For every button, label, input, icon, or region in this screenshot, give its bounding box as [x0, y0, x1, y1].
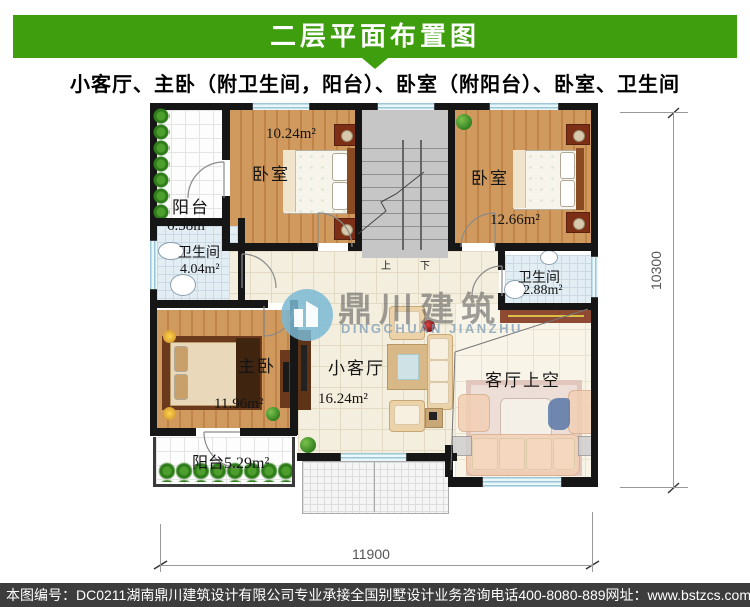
- watermark-en: DINGCHUAN JIANZHU: [341, 321, 523, 336]
- window: [377, 103, 435, 110]
- lamp-icon: [163, 330, 176, 343]
- tv-icon: [283, 362, 289, 392]
- window: [340, 453, 407, 461]
- wall: [560, 477, 598, 487]
- void-sofa-cushion: [553, 438, 575, 470]
- window: [482, 477, 562, 487]
- phone-number: 咨询电话400-8080-889: [462, 585, 605, 605]
- bedroom-left-area: 10.24m²: [266, 126, 316, 143]
- dim-height-label: 10300: [648, 251, 664, 290]
- website: 网址：www.bstzcs.com: [606, 585, 750, 605]
- wall: [448, 477, 482, 487]
- dim-ext-line: [160, 524, 161, 572]
- dim-line-bottom: [160, 565, 592, 566]
- company-name: 湖南鼎川建筑设计有限公司专业承接全国别墅设计业务: [126, 585, 462, 605]
- pillow: [174, 346, 188, 372]
- bedroom-right-area: 12.66m²: [490, 212, 540, 229]
- balcony-parapet: [292, 437, 295, 487]
- stairs-down-label: 下: [420, 257, 430, 272]
- armchair-cushion: [394, 405, 420, 425]
- window: [150, 240, 157, 290]
- porch-floor: [302, 461, 449, 514]
- wall: [150, 428, 196, 436]
- pillow: [560, 180, 575, 207]
- void-name: 客厅上空: [485, 366, 561, 391]
- wall: [150, 300, 268, 308]
- dim-line-right: [673, 113, 674, 488]
- wall: [495, 243, 598, 251]
- pillow: [560, 152, 575, 179]
- stair-rail: [420, 140, 422, 250]
- lamp-icon: [163, 407, 176, 420]
- bed-right-blanket: [513, 150, 526, 208]
- wall: [448, 110, 455, 251]
- balcony-parapet: [153, 484, 295, 487]
- wall: [290, 300, 298, 435]
- wall: [222, 110, 230, 160]
- sofa-cushion: [429, 338, 449, 360]
- balcony-top-name: 阳台: [172, 193, 210, 218]
- page-title: 二层平面布置图: [13, 15, 737, 58]
- drawing-number: 本图编号：DC0211: [6, 585, 126, 605]
- wall: [297, 453, 340, 461]
- void-armchair: [458, 394, 490, 432]
- dim-ext-line: [592, 512, 593, 572]
- tv-icon: [301, 345, 307, 391]
- balcony-parapet: [153, 437, 156, 487]
- dim-ext-line: [620, 487, 688, 488]
- window: [591, 256, 598, 298]
- wall: [240, 428, 297, 436]
- sofa-cushion: [429, 382, 449, 404]
- sink-icon: [540, 250, 558, 265]
- void-sofa-cushion: [499, 438, 525, 470]
- dim-width-label: 11900: [352, 546, 390, 562]
- bed-left-headboard: [347, 148, 355, 214]
- pillow: [174, 374, 188, 400]
- living-area: 16.24m²: [318, 391, 368, 408]
- wall: [445, 445, 453, 477]
- sofa-cushion: [429, 360, 449, 382]
- stairs-up-label: 上: [381, 257, 391, 272]
- void-tv-cabinet-trim: [508, 315, 584, 317]
- wall: [238, 218, 245, 306]
- void-sofa-cushion: [526, 438, 552, 470]
- bed-right-headboard: [576, 148, 584, 210]
- bath-left-area: 4.04m²: [180, 262, 220, 278]
- wall: [222, 243, 318, 251]
- pillow: [332, 153, 348, 181]
- wall: [448, 243, 462, 251]
- wall: [498, 303, 598, 310]
- bath-right-area: 2.88m²: [523, 283, 563, 299]
- nightstand: [566, 212, 590, 233]
- plant-icon: [456, 114, 472, 130]
- void-sofa-cushion: [472, 438, 498, 470]
- bedroom-right-name: 卧室: [471, 164, 509, 189]
- balcony-top-area: 6.38m²: [167, 218, 209, 235]
- living-name: 小客厅: [328, 354, 385, 379]
- nightstand: [566, 124, 590, 145]
- balcony-bottom-label: 阳台5.29m²: [192, 449, 269, 473]
- stair-rail: [402, 140, 404, 250]
- footer-bar: 本图编号：DC0211 湖南鼎川建筑设计有限公司专业承接全国别墅设计业务 咨询电…: [0, 583, 750, 607]
- wall: [355, 110, 362, 251]
- coffee-table-glass: [397, 354, 419, 380]
- window: [489, 103, 559, 110]
- dim-ext-line: [620, 112, 688, 113]
- pillow: [332, 182, 348, 210]
- porch-divider-line: [374, 461, 375, 512]
- wall: [498, 248, 505, 270]
- window: [252, 103, 310, 110]
- floor-plan-page: 二层平面布置图 小客厅、主卧（附卫生间，阳台）、卧室（附阳台）、卧室、卫生间: [0, 0, 750, 607]
- stair-treads: [362, 136, 448, 252]
- balcony-plants: [153, 108, 170, 218]
- bath-left-name: 卫生间: [178, 242, 220, 262]
- master-name: 主卧: [238, 352, 276, 377]
- decor-item: [429, 412, 437, 420]
- page-subtitle: 小客厅、主卧（附卫生间，阳台）、卧室（附阳台）、卧室、卫生间: [0, 68, 750, 97]
- master-area: 11.96m²: [214, 396, 263, 413]
- plant-icon: [300, 437, 316, 453]
- wall: [348, 243, 362, 251]
- plant-icon: [266, 407, 280, 421]
- bedroom-left-name: 卧室: [252, 160, 290, 185]
- person-figure: [548, 398, 570, 430]
